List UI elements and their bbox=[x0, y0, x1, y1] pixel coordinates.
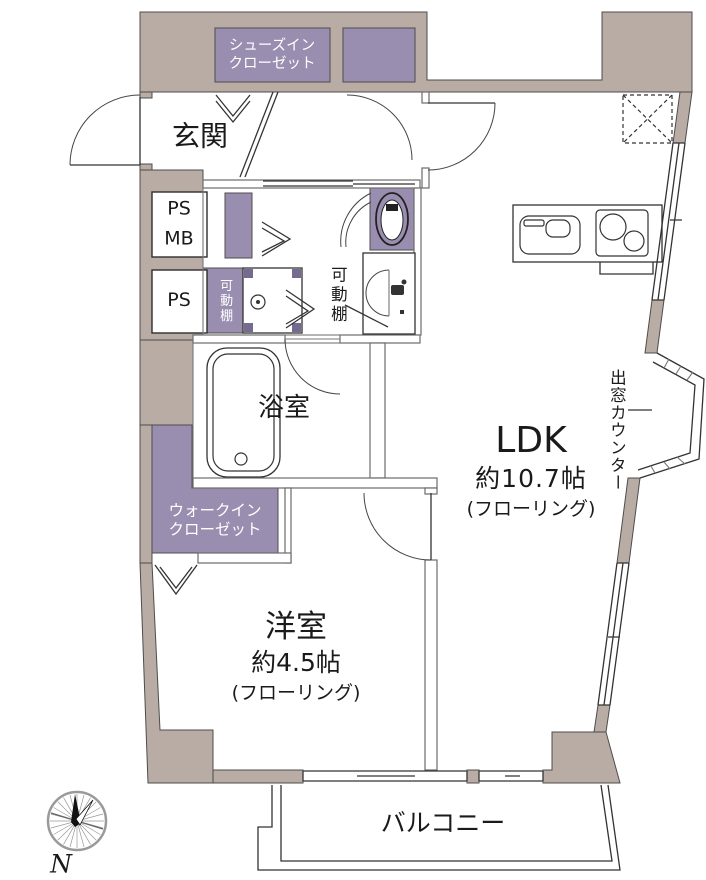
cabinet-folding-door-icon bbox=[262, 222, 290, 256]
shoes-closet-label-line1: シューズイン bbox=[229, 37, 316, 55]
kitchen-sink-icon bbox=[520, 216, 580, 254]
bottom-left-block bbox=[140, 563, 213, 783]
left-wall-wic bbox=[140, 425, 152, 563]
balcony-label: バルコニー bbox=[381, 807, 506, 838]
right-slant-wall-2 bbox=[645, 300, 664, 353]
ldk-door-arc bbox=[428, 103, 495, 170]
vanity-door-arc-1 bbox=[341, 193, 371, 247]
bay-window-hatch bbox=[651, 359, 693, 473]
bottom-right-block bbox=[543, 732, 620, 783]
toilet-icon bbox=[363, 253, 415, 334]
ps-label: PS bbox=[167, 289, 191, 313]
compass-icon bbox=[48, 792, 106, 850]
ps-mb-label: PS MB bbox=[164, 194, 193, 255]
bottom-wall-pillar bbox=[467, 770, 479, 783]
tall-cabinet bbox=[225, 193, 252, 258]
wic-label-line1: ウォークイン bbox=[168, 502, 261, 521]
right-window-lower bbox=[598, 563, 629, 705]
hall-storage-box bbox=[343, 28, 415, 82]
genkan-label: 玄関 bbox=[172, 119, 228, 154]
bedroom-door-arc bbox=[364, 493, 431, 560]
ldk-flooring: (フローリング) bbox=[467, 498, 596, 522]
ps-label-line: PS bbox=[164, 194, 193, 224]
right-slant-wall-1 bbox=[673, 92, 692, 143]
ldk-name: LDK bbox=[467, 418, 596, 463]
stove-icon bbox=[596, 210, 648, 256]
left-wall-stub-top bbox=[140, 92, 152, 98]
western-room-label: 洋室 約4.5帖 (フローリング) bbox=[232, 608, 361, 706]
genkan-inner-door-arc bbox=[347, 95, 412, 160]
kitchen-counter bbox=[513, 205, 662, 274]
mb-label-line: MB bbox=[164, 224, 193, 254]
bathroom-door-arc bbox=[285, 339, 340, 394]
western-room-name: 洋室 bbox=[232, 608, 361, 647]
balcony-window-left bbox=[303, 771, 467, 781]
bathroom-label: 浴室 bbox=[258, 392, 310, 425]
bay-window-counter-label: 出窓カウンター bbox=[606, 369, 627, 492]
western-room-size: 約4.5帖 bbox=[232, 647, 361, 678]
washer-shelf-label: 可動棚 bbox=[216, 279, 232, 324]
wic-folding-door-icon bbox=[155, 565, 197, 594]
bottom-wall-band bbox=[213, 770, 303, 783]
toilet-shelf-label: 可動棚 bbox=[327, 266, 348, 325]
genkan-step-line bbox=[240, 92, 278, 177]
bay-window bbox=[628, 353, 704, 478]
right-slant-wall-4 bbox=[594, 705, 610, 732]
ldk-label: LDK 約10.7帖 (フローリング) bbox=[467, 418, 596, 522]
refrigerator-dashed-box bbox=[623, 95, 672, 143]
floor-plan-drawing bbox=[0, 0, 706, 880]
entrance-door-arc bbox=[70, 95, 140, 165]
wic-label-line2: クローゼット bbox=[168, 521, 261, 540]
floor-plan-page: 玄関 シューズイン クローゼット PS MB PS 可動棚 可動棚 浴室 LDK… bbox=[0, 0, 706, 880]
western-room-flooring: (フローリング) bbox=[232, 682, 361, 706]
left-wall-bath-block bbox=[140, 340, 193, 425]
ldk-size: 約10.7帖 bbox=[467, 463, 596, 494]
walk-in-closet-label: ウォークイン クローゼット bbox=[168, 502, 261, 541]
vanity-door-arc-2 bbox=[346, 202, 371, 247]
compass-north-label: N bbox=[50, 848, 72, 879]
shoes-closet-label-line2: クローゼット bbox=[229, 55, 316, 73]
balcony-window-right bbox=[479, 771, 543, 781]
shoes-closet-label: シューズイン クローゼット bbox=[229, 37, 316, 73]
